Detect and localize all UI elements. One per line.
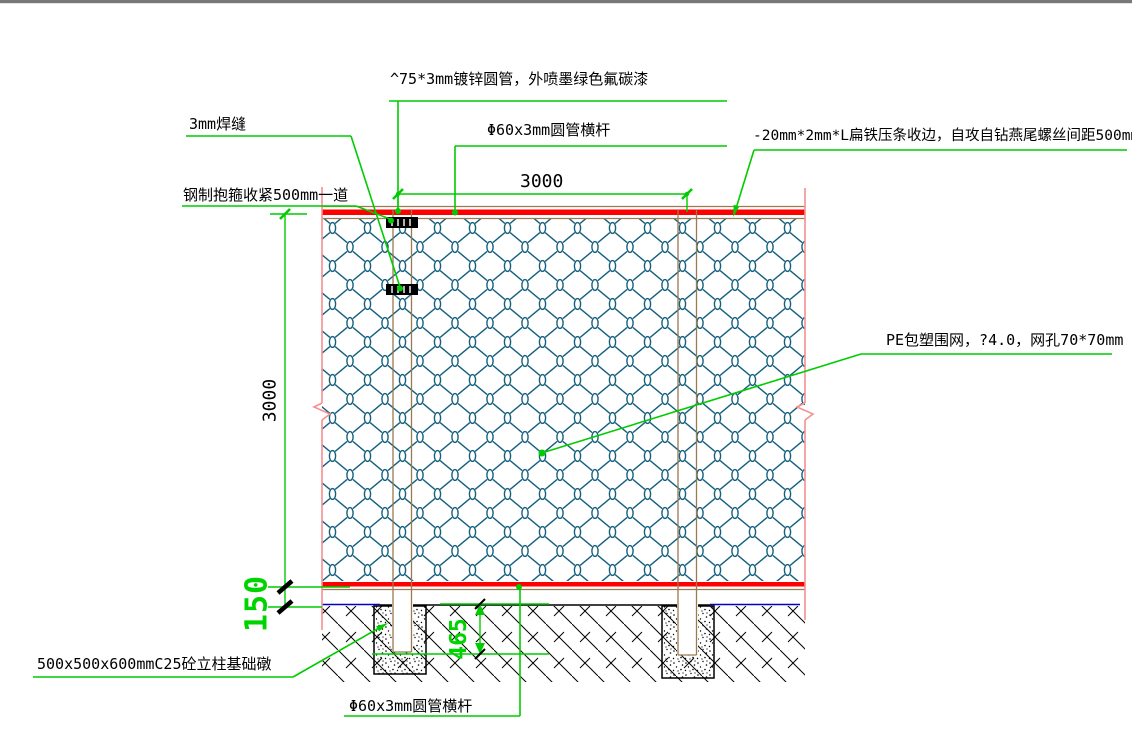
cad-linework bbox=[0, 0, 1132, 750]
label-weld: 3mm焊缝 bbox=[189, 116, 246, 133]
dim-text-ground-gap: 150 bbox=[240, 562, 275, 646]
dim-text-height: 3000 bbox=[260, 379, 281, 423]
chain-link-mesh bbox=[322, 219, 805, 581]
foundation-pier-right bbox=[662, 604, 714, 678]
label-top-pipe: ^75*3mm镀锌圆管，外喷墨绿色氟碳漆 bbox=[390, 71, 648, 88]
label-top-rail: Φ60x3mm圆管横杆 bbox=[487, 122, 610, 139]
label-flat-iron: -20mm*2mm*L扁铁压条收边，自攻自钻燕尾螺丝间距500mm bbox=[753, 129, 1132, 145]
dim-text-embed-depth: 465 bbox=[446, 607, 472, 671]
dim-text-span: 3000 bbox=[520, 171, 563, 192]
foundation-pier-left bbox=[374, 604, 426, 674]
top-rail bbox=[322, 207, 805, 219]
label-bottom-rail: Φ60x3mm圆管横杆 bbox=[349, 698, 472, 715]
bottom-rail bbox=[322, 582, 805, 590]
label-mesh: PE包塑围网，?4.0，网孔70*70mm bbox=[886, 332, 1123, 349]
label-foundation: 500x500x600mmC25砼立柱基础礅 bbox=[37, 656, 272, 673]
dim-span-3000 bbox=[393, 189, 692, 212]
label-clamp: 钢制抱箍收紧500mm一道 bbox=[183, 187, 348, 204]
page-top-border bbox=[0, 0, 1132, 3]
drawing-page: ^75*3mm镀锌圆管，外喷墨绿色氟碳漆 Φ60x3mm圆管横杆 3mm焊缝 钢… bbox=[0, 0, 1132, 750]
